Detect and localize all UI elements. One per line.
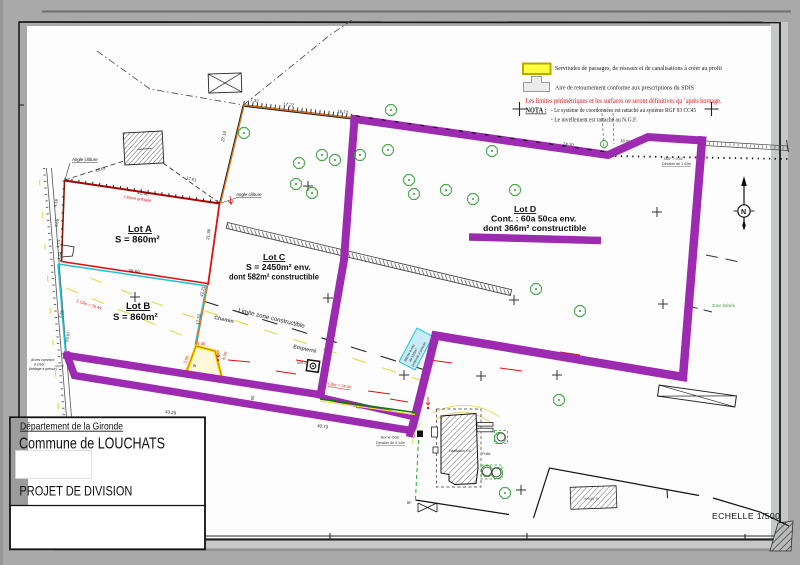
svg-text:(bédage à prévoir): (bédage à prévoir)	[29, 367, 57, 371]
svg-text:Zone boisée: Zone boisée	[712, 303, 736, 308]
svg-text:Décalée de 0.14m: Décalée de 0.14m	[376, 441, 405, 445]
svg-text:Bf: Bf	[193, 364, 196, 368]
svg-text:Angle clôture: Angle clôture	[71, 157, 98, 162]
svg-text:Puits: Puits	[482, 452, 491, 456]
svg-text:Hangar av: Hangar av	[583, 496, 599, 501]
svg-text:à créer: à créer	[34, 363, 45, 367]
svg-text:Lot A: Lot A	[128, 224, 152, 235]
svg-text:S = 860m²: S = 860m²	[113, 312, 158, 323]
svg-text:PROJET DE DIVISION: PROJET DE DIVISION	[19, 484, 132, 499]
svg-text:- Le système de coordonnées es: - Le système de coordonnées est rattaché…	[551, 107, 696, 114]
svg-text:Décalée de 1.02m: Décalée de 1.02m	[662, 162, 691, 166]
svg-text:NGF = 0.52: NGF = 0.52	[664, 157, 683, 161]
svg-text:Angle clôture: Angle clôture	[235, 192, 262, 197]
svg-text:BF: BF	[407, 501, 412, 505]
svg-text:Les limites périmétriques et l: Les limites périmétriques et les surface…	[526, 96, 722, 105]
svg-text:S = 860m²: S = 860m²	[115, 235, 160, 246]
svg-text:dont 366m² constructible: dont 366m² constructible	[483, 223, 586, 233]
svg-text:N: N	[741, 209, 746, 216]
svg-text:Accès commun: Accès commun	[30, 358, 54, 362]
svg-text:S = 2450m² env.: S = 2450m² env.	[246, 262, 311, 272]
svg-text:Servitudes de passages, de rés: Servitudes de passages, de réseaux et de…	[555, 65, 722, 72]
svg-text:Lot C: Lot C	[263, 252, 286, 262]
svg-text:Lot D: Lot D	[514, 204, 536, 214]
svg-text:- Le nivellement est rattaché: - Le nivellement est rattaché au N.G.F.	[551, 117, 637, 124]
svg-text:Habitation RC: Habitation RC	[449, 449, 472, 453]
svg-text:dont 582m² constructible: dont 582m² constructible	[229, 272, 319, 282]
svg-text:Lot B: Lot B	[126, 301, 150, 312]
svg-text:Cont. : 60a 50ca env.: Cont. : 60a 50ca env.	[491, 214, 576, 224]
svg-text:Aire de retournement conforme: Aire de retournement conforme aux prescr…	[555, 85, 694, 92]
svg-text:NOTA :: NOTA :	[526, 107, 547, 115]
svg-text:Borne OGE: Borne OGE	[381, 436, 400, 440]
svg-text:ECHELLE 1/500: ECHELLE 1/500	[712, 511, 780, 521]
svg-text:Commune de LOUCHATS: Commune de LOUCHATS	[19, 435, 165, 452]
svg-text:509.1: 509.1	[297, 361, 306, 365]
